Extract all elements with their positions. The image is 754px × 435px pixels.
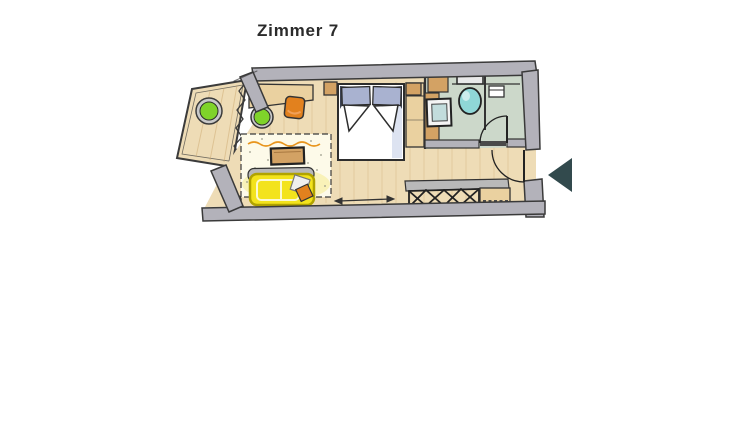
balcony-table <box>196 98 222 124</box>
double-bed <box>338 84 404 160</box>
wall-shelf <box>489 86 504 97</box>
bath-threshold <box>480 141 506 146</box>
carousel-prev-arrow[interactable] <box>548 158 572 192</box>
sink-icon <box>427 99 452 127</box>
nightstand-left <box>324 82 337 95</box>
floorplan-page: Zimmer 7 <box>0 0 754 435</box>
wall-right-upper <box>522 70 540 150</box>
sofa <box>248 167 314 205</box>
desk-chair <box>284 96 305 119</box>
nightstand-right <box>406 83 421 95</box>
wardrobe <box>406 83 424 147</box>
floorplan-drawing <box>0 0 754 435</box>
coffee-table <box>271 147 305 164</box>
